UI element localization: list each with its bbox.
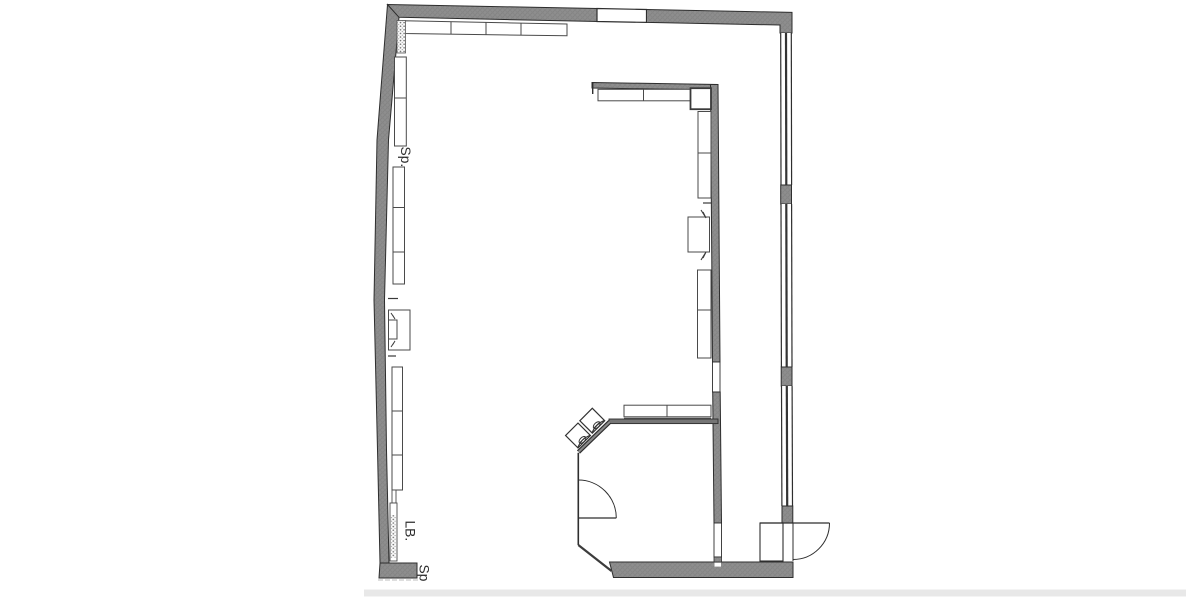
- svg-text:Sp: Sp: [417, 565, 432, 582]
- svg-text:LB.: LB.: [403, 521, 418, 542]
- svg-text:Sp.: Sp.: [398, 147, 413, 168]
